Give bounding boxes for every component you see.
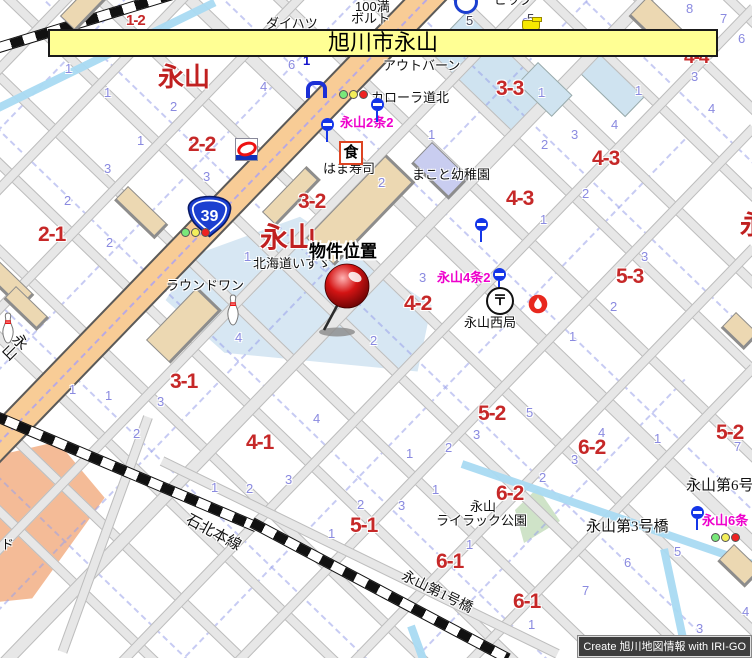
restaurant-icon: 食 <box>339 141 363 165</box>
block-number: 2 <box>582 187 589 201</box>
block-number: 3 <box>641 250 648 264</box>
post-office-icon: 〒 <box>486 287 514 315</box>
block-number: 3 <box>157 395 164 409</box>
block-number: 1 <box>211 481 218 495</box>
block-number: 2 <box>445 441 452 455</box>
block-number: 3 <box>285 473 292 487</box>
block-number: 6 <box>624 556 631 570</box>
block-number: 1 <box>65 62 72 76</box>
bowling-pin-graphic <box>1 312 15 344</box>
block-number: 4 <box>313 412 320 426</box>
block-number: 3 <box>203 170 210 184</box>
place-label: ボルト <box>351 12 390 26</box>
district-number-label: 6-1 <box>513 591 540 613</box>
intersection-label: 永山4条2 <box>437 271 490 285</box>
district-number-label: 6-1 <box>436 551 463 573</box>
block-number: 1 <box>569 330 576 344</box>
place-label: ラウンドワン <box>166 279 244 293</box>
area-name-label: 永 <box>740 212 752 239</box>
intersection-label: 永山2条2 <box>340 116 393 130</box>
bus-stop-icon <box>370 98 384 122</box>
bus-stop-icon <box>690 506 704 530</box>
place-label: 永山 <box>470 500 496 514</box>
pin-graphic <box>300 258 375 348</box>
district-number-label: 2-1 <box>38 224 65 246</box>
place-label: 永山西局 <box>464 316 516 330</box>
block-number: 5 <box>674 545 681 559</box>
block-number: 1 <box>244 250 251 264</box>
intersection-label: 永山6条 <box>702 514 748 528</box>
place-label: ド <box>1 538 14 552</box>
block-number: 1 <box>466 538 473 552</box>
block-number: 4 <box>611 118 618 132</box>
block-number: 1 <box>428 128 435 142</box>
block-number: 4 <box>235 331 242 345</box>
store-icon <box>235 138 258 161</box>
monument-icon <box>306 81 327 98</box>
district-number-label: 4-3 <box>592 148 619 170</box>
credit-badge: Create 旭川地図情報 with IRI-GO <box>577 635 752 658</box>
block-number: 2 <box>64 194 71 208</box>
place-label: まこと幼稚園 <box>412 168 490 182</box>
building <box>114 186 168 239</box>
block-number: 1 <box>69 383 76 397</box>
place-label: ライラック公園 <box>436 514 527 528</box>
place-label: アウトバーン <box>383 59 460 73</box>
bowling-pin-icon <box>226 294 240 331</box>
district-number-label: 6-2 <box>578 437 605 459</box>
block-number: 6 <box>738 32 745 46</box>
block-number: 1 <box>528 618 535 632</box>
area-name-label: 永山 <box>260 224 316 253</box>
block-number: 4 <box>598 426 605 440</box>
block-number: 2 <box>541 138 548 152</box>
block-number: 2 <box>539 471 546 485</box>
place-label: 永山第6号 <box>686 479 752 495</box>
district-number-label: 5-3 <box>616 266 643 288</box>
place-label: ビッグ <box>494 0 533 7</box>
page-title: 旭川市永山 <box>328 30 438 55</box>
block-number: 3 <box>571 128 578 142</box>
credit-text: Create 旭川地図情報 with IRI-GO <box>583 641 746 653</box>
block-number: 1 <box>432 483 439 497</box>
block-number: 2 <box>378 176 385 190</box>
block-number: 2 <box>170 100 177 114</box>
district-number-label: 2-2 <box>188 134 215 156</box>
block-number: 1 <box>105 389 112 403</box>
block-number: 1 <box>635 84 642 98</box>
district-number-label: 4-3 <box>506 188 533 210</box>
fire-station-icon <box>528 294 548 319</box>
block-number: 2 <box>106 236 113 250</box>
block-number: 3 <box>696 622 703 636</box>
traffic-light-icon <box>181 228 211 246</box>
property-pin-icon <box>300 258 375 353</box>
block-number: 1 <box>654 432 661 446</box>
block-number: 3 <box>419 271 426 285</box>
district-number-label: 3-2 <box>298 191 325 213</box>
district-number-label: 5-1 <box>350 515 377 537</box>
traffic-light-icon <box>711 533 741 551</box>
block-number: 1 <box>540 213 547 227</box>
svg-text:39: 39 <box>201 208 219 225</box>
block-number: 1 <box>406 447 413 461</box>
block-number: 7 <box>582 584 589 598</box>
block-number: 5 <box>526 406 533 420</box>
block-number: 2 <box>357 498 364 512</box>
district-number-label: 4-1 <box>246 432 273 454</box>
block-number: 8 <box>686 2 693 16</box>
block-number: 4 <box>708 102 715 116</box>
block-number: 5 <box>466 14 473 28</box>
district-number-label: 5-2 <box>478 403 505 425</box>
map-canvas[interactable]: 永山永山永1-22-22-13-33-23-14-44-34-34-24-15-… <box>0 0 752 658</box>
block-number: 3 <box>473 428 480 442</box>
block-number: 2 <box>246 482 253 496</box>
block-number: 3 <box>691 70 698 84</box>
district-number-label: 6-2 <box>496 483 523 505</box>
bus-stop-icon <box>320 118 334 142</box>
block-number: 7 <box>720 12 727 26</box>
block-number: 2 <box>133 427 140 441</box>
block-number: 1 <box>137 134 144 148</box>
block-number: 4 <box>742 605 749 619</box>
block-number: 4 <box>260 80 267 94</box>
traffic-light-icon <box>339 90 369 108</box>
bus-stop-icon <box>474 218 488 242</box>
district-number-label: 3-1 <box>170 371 197 393</box>
bowling-pin-icon <box>1 312 15 349</box>
block-number: 2 <box>610 300 617 314</box>
district-number-label: 1-2 <box>126 13 145 29</box>
block-number: 3 <box>398 499 405 513</box>
district-number-label: 3-3 <box>496 78 523 100</box>
area-name-label: 永山 <box>158 64 210 91</box>
block-number: 6 <box>288 58 295 72</box>
block-number: 3 <box>571 453 578 467</box>
bowling-pin-graphic <box>226 294 240 326</box>
block-number: 1 <box>538 86 545 100</box>
place-label: 永山第3号橋 <box>586 520 669 536</box>
block-number: 1 <box>328 527 335 541</box>
block-number: 1 <box>104 86 111 100</box>
flame-graphic <box>528 294 548 314</box>
block-number: 7 <box>734 440 741 454</box>
map-title-banner: 旭川市永山 <box>48 29 718 57</box>
block-number: 3 <box>104 162 111 176</box>
district-number-label: 4-2 <box>404 293 431 315</box>
